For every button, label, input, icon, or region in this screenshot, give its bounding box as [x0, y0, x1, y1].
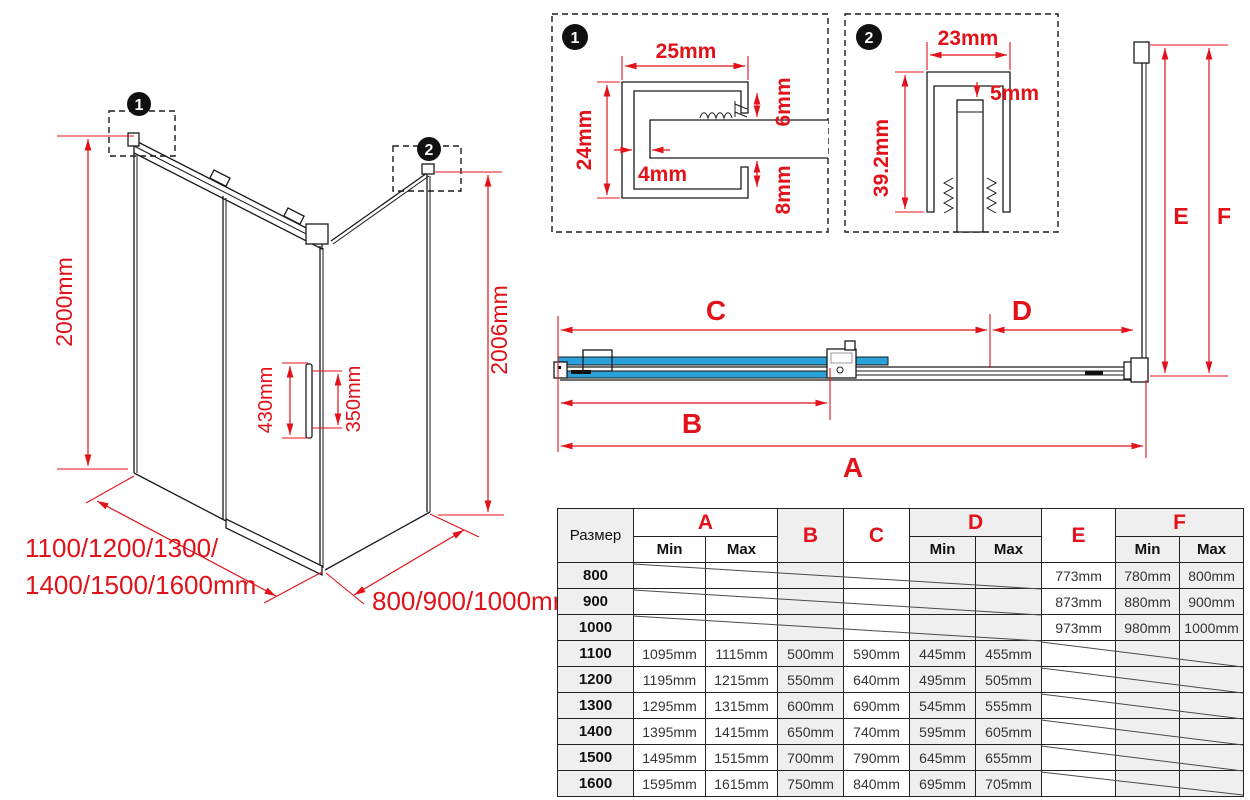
table-row-1400: 1400 1395mm 1415mm 650mm 740mm 595mm 605…: [558, 719, 1244, 745]
cell-d-min: 495mm: [910, 667, 976, 693]
cell-c: 640mm: [844, 667, 910, 693]
header-row-letters: Размер A B C D E F: [558, 509, 1244, 537]
cell-f-max: 1000mm: [1180, 615, 1244, 641]
d-min-header: Min: [910, 537, 976, 563]
cell-a-min: 1195mm: [634, 667, 706, 693]
callout1-number: 1: [135, 97, 144, 114]
fixed-glass-bottom-edge: [134, 473, 226, 521]
support-bar-inner: [333, 176, 429, 244]
f-min-header: Min: [1116, 537, 1180, 563]
cell-b: 650mm: [778, 719, 844, 745]
cell-a-min: 1495mm: [634, 745, 706, 771]
dim-a-label: A: [843, 452, 863, 483]
cell-a-max: [706, 563, 778, 589]
cell-size: 1000: [558, 615, 634, 641]
cell-f-max: [1180, 667, 1244, 693]
detail-2: 2 23mm 5mm 39.2mm: [845, 14, 1058, 232]
door-handle: [306, 364, 312, 438]
col-header-c: C: [844, 509, 910, 563]
cell-d-min: [910, 563, 976, 589]
cell-size: 1400: [558, 719, 634, 745]
cell-size: 1200: [558, 667, 634, 693]
cell-d-min: 645mm: [910, 745, 976, 771]
cell-e: [1042, 641, 1116, 667]
door-bottom-rail: [226, 519, 322, 575]
detail1-dim-width: 25mm: [622, 40, 748, 80]
cell-f-min: [1116, 667, 1180, 693]
table-row-1100: 1100 1095mm 1115mm 500mm 590mm 445mm 455…: [558, 641, 1244, 667]
dim-front-width-label2: 1400/1500/1600mm: [25, 570, 256, 600]
detail2-glass: [957, 100, 983, 232]
dim-height-side: 2006mm: [434, 172, 512, 515]
cell-a-max: 1215mm: [706, 667, 778, 693]
shower-enclosure-spec-sheet: 1 2 2000mm 2006mm 430mm: [0, 0, 1250, 800]
cell-c: 690mm: [844, 693, 910, 719]
detail2-dim-height: 39.2mm: [870, 72, 924, 212]
cell-d-max: 655mm: [976, 745, 1042, 771]
dim-d-label: D: [1012, 295, 1032, 326]
callout2-number: 2: [425, 142, 434, 159]
cell-e: [1042, 693, 1116, 719]
col-header-f: F: [1116, 509, 1244, 537]
cell-d-max: 505mm: [976, 667, 1042, 693]
dim-a: A: [561, 380, 1146, 483]
cell-a-min: [634, 589, 706, 615]
table-row-800: 800 773mm 780mm 800mm: [558, 563, 1244, 589]
cell-size: 1500: [558, 745, 634, 771]
cell-b: 600mm: [778, 693, 844, 719]
cell-a-min: [634, 615, 706, 641]
cell-e: 773mm: [1042, 563, 1116, 589]
table-row-900: 900 873mm 880mm 900mm: [558, 589, 1244, 615]
detail1-dim-gap-label: 4mm: [638, 163, 687, 186]
detail1-dim-height: 24mm: [573, 82, 620, 198]
cell-b: 700mm: [778, 745, 844, 771]
cell-b: 750mm: [778, 771, 844, 797]
cell-b: [778, 615, 844, 641]
iso-view: 1 2 2000mm 2006mm 430mm: [25, 92, 574, 616]
cell-size: 900: [558, 589, 634, 615]
cell-d-min: 595mm: [910, 719, 976, 745]
detail2-dim-width: 23mm: [927, 27, 1010, 70]
dim-side-depth-label: 800/900/1000mm: [372, 586, 574, 616]
cell-size: 1300: [558, 693, 634, 719]
dim-c-label: C: [706, 295, 726, 326]
detail1-dim-height-label: 24mm: [573, 110, 596, 171]
detail2-dim-glass-gap-label: 5mm: [990, 82, 1039, 105]
detail2-dim-height-label: 39.2mm: [870, 119, 893, 197]
detail1-dim-bottom-inset: 8mm: [757, 161, 795, 215]
detail1-dim-top-inset: 6mm: [757, 77, 795, 126]
cell-a-max: [706, 615, 778, 641]
cell-d-max: [976, 589, 1042, 615]
dim-front-width: 1100/1200/1300/ 1400/1500/1600mm: [25, 476, 322, 603]
detail1-dim-bottom-inset-label: 8mm: [772, 165, 795, 214]
side-panel-plan: [1131, 42, 1149, 382]
hatch-left: [571, 370, 591, 374]
cell-d-max: 555mm: [976, 693, 1042, 719]
support-bar: [331, 173, 427, 241]
cell-a-max: 1315mm: [706, 693, 778, 719]
dim-b: B: [561, 368, 830, 439]
roller-carriage-plan: [827, 341, 856, 378]
cell-a-min: [634, 563, 706, 589]
cell-a-min: 1095mm: [634, 641, 706, 667]
cell-a-min: 1395mm: [634, 719, 706, 745]
dim-e-label: E: [1173, 203, 1188, 229]
dim-side-depth: 800/900/1000mm: [326, 514, 574, 616]
cell-b: 500mm: [778, 641, 844, 667]
cell-c: [844, 589, 910, 615]
cell-e: 873mm: [1042, 589, 1116, 615]
cell-f-min: [1116, 641, 1180, 667]
table-row-1500: 1500 1495mm 1515mm 700mm 790mm 645mm 655…: [558, 745, 1244, 771]
dim-handle-holes-label: 350mm: [343, 366, 365, 433]
cell-e: [1042, 667, 1116, 693]
a-max-header: Max: [706, 537, 778, 563]
col-header-a: A: [634, 509, 778, 537]
cell-a-max: 1515mm: [706, 745, 778, 771]
cell-c: [844, 563, 910, 589]
corner-bracket: [306, 224, 328, 244]
cell-a-max: 1115mm: [706, 641, 778, 667]
dim-height-front-label: 2000mm: [51, 257, 77, 346]
dim-f: F: [1209, 48, 1231, 373]
cell-d-max: [976, 615, 1042, 641]
cell-f-max: [1180, 745, 1244, 771]
detail-1: 1 25mm 24mm 4mm 6mm: [552, 14, 828, 232]
cell-f-min: 980mm: [1116, 615, 1180, 641]
hatch-right: [1085, 371, 1103, 375]
d-max-header: Max: [976, 537, 1042, 563]
side-panel-top-cap: [422, 164, 434, 174]
cell-f-max: [1180, 641, 1244, 667]
dim-handle-length: 430mm: [255, 363, 308, 438]
detail1-glass: [650, 120, 828, 158]
detail1-dim-width-label: 25mm: [656, 40, 717, 63]
cell-e: [1042, 745, 1116, 771]
cell-f-min: [1116, 771, 1180, 797]
dim-height-side-label: 2006mm: [486, 285, 512, 374]
dim-handle-length-label: 430mm: [255, 367, 277, 434]
dim-height-front: 2000mm: [51, 136, 134, 469]
table-row-1300: 1300 1295mm 1315mm 600mm 690mm 545mm 555…: [558, 693, 1244, 719]
cell-f-min: [1116, 693, 1180, 719]
col-header-b: B: [778, 509, 844, 563]
cell-c: 740mm: [844, 719, 910, 745]
rail-left-cap: [128, 133, 139, 146]
cell-size: 1600: [558, 771, 634, 797]
detail1-gasket: [700, 101, 747, 118]
cell-d-max: 455mm: [976, 641, 1042, 667]
cell-b: 550mm: [778, 667, 844, 693]
cell-d-min: [910, 589, 976, 615]
cell-e: [1042, 719, 1116, 745]
cell-a-max: 1415mm: [706, 719, 778, 745]
size-table: Размер A B C D E F Min Max Min Max Min M…: [557, 508, 1244, 797]
cell-f-min: 780mm: [1116, 563, 1180, 589]
cell-f-min: 880mm: [1116, 589, 1180, 615]
cell-c: [844, 615, 910, 641]
cell-d-min: 445mm: [910, 641, 976, 667]
cell-f-max: [1180, 693, 1244, 719]
table-row-1200: 1200 1195mm 1215mm 550mm 640mm 495mm 505…: [558, 667, 1244, 693]
detail2-dim-width-label: 23mm: [938, 27, 999, 50]
cell-d-min: 695mm: [910, 771, 976, 797]
cell-d-max: 705mm: [976, 771, 1042, 797]
dim-b-label: B: [682, 408, 702, 439]
table-row-1600: 1600 1595mm 1615mm 750mm 840mm 695mm 705…: [558, 771, 1244, 797]
dim-front-width-label1: 1100/1200/1300/: [25, 533, 219, 563]
cell-size: 800: [558, 563, 634, 589]
left-end-block: [554, 362, 567, 378]
dim-d: D: [993, 295, 1133, 330]
cell-f-max: 800mm: [1180, 563, 1244, 589]
cell-d-min: [910, 615, 976, 641]
cell-a-min: 1295mm: [634, 693, 706, 719]
cell-d-min: 545mm: [910, 693, 976, 719]
col-header-d: D: [910, 509, 1042, 537]
cell-b: [778, 563, 844, 589]
cell-d-max: [976, 563, 1042, 589]
fixed-glass-plan: [566, 371, 830, 378]
side-panel-bottom-edge: [325, 512, 430, 570]
dim-f-label: F: [1217, 203, 1231, 229]
cell-d-max: 605mm: [976, 719, 1042, 745]
cell-c: 790mm: [844, 745, 910, 771]
cell-e: 973mm: [1042, 615, 1116, 641]
cell-a-max: [706, 589, 778, 615]
detail1-number: 1: [571, 30, 580, 47]
top-view: C D B A E F: [554, 42, 1231, 483]
table-row-1000: 1000 973mm 980mm 1000mm: [558, 615, 1244, 641]
cell-f-max: 900mm: [1180, 589, 1244, 615]
a-min-header: Min: [634, 537, 706, 563]
cell-f-min: [1116, 719, 1180, 745]
detail2-number: 2: [865, 30, 874, 47]
cell-c: 590mm: [844, 641, 910, 667]
f-max-header: Max: [1180, 537, 1244, 563]
cell-c: 840mm: [844, 771, 910, 797]
cell-e: [1042, 771, 1116, 797]
cell-size: 1100: [558, 641, 634, 667]
cell-a-min: 1595mm: [634, 771, 706, 797]
cell-a-max: 1615mm: [706, 771, 778, 797]
cell-b: [778, 589, 844, 615]
cell-f-min: [1116, 745, 1180, 771]
cell-f-max: [1180, 719, 1244, 745]
size-table-container: Размер A B C D E F Min Max Min Max Min M…: [557, 508, 1243, 796]
size-header: Размер: [558, 509, 634, 563]
detail1-dim-top-inset-label: 6mm: [772, 77, 795, 126]
cell-f-max: [1180, 771, 1244, 797]
top-rail-groove: [134, 146, 322, 242]
col-header-e: E: [1042, 509, 1116, 563]
